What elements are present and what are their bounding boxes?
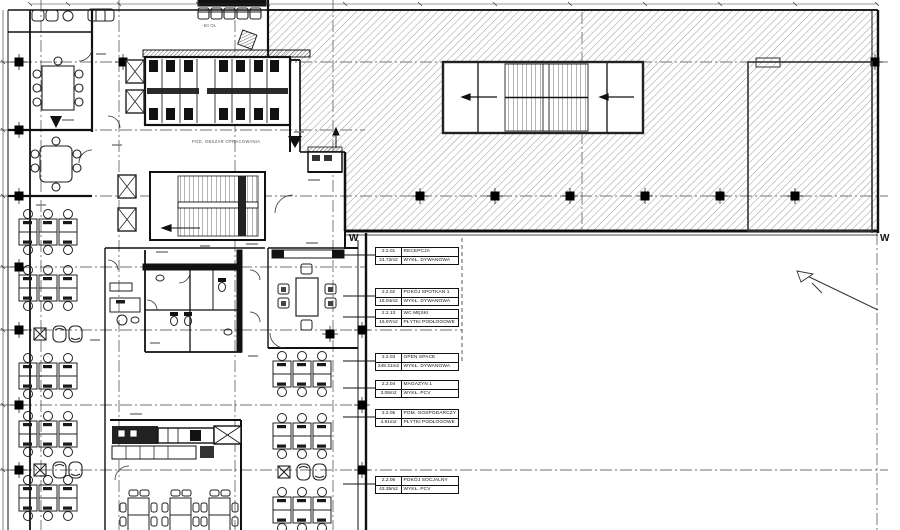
room-number: 2.2.04 — [376, 381, 402, 389]
wc-block — [145, 57, 290, 125]
room-area: 16.07m2 — [376, 319, 402, 326]
section-marker-w-left: W — [349, 233, 358, 244]
room-name: OPEN SPACE — [402, 354, 458, 362]
schedule-entry: 2.2.03OPEN SPACE 249.31m2WYKŁ. DYWANOWA — [375, 353, 459, 371]
room-number: 2.2.05 — [376, 410, 402, 418]
leader-arrow — [797, 271, 878, 310]
room-number: 2.2.02 — [376, 289, 402, 297]
room-floor: WYKŁ. DYWANOWA — [402, 298, 458, 305]
room-floor: WYKŁ. PCV — [402, 486, 458, 493]
room-number: 2.2.13 — [376, 310, 402, 318]
meeting-room-a — [33, 57, 83, 128]
room-area: 249.31m2 — [376, 363, 402, 370]
schedule-entry: 2.2.06POKÓJ SOCJALNY 43.35m2WYKŁ. PCV — [375, 476, 459, 494]
waiting-chair-row — [198, 8, 261, 49]
room-floor: WYKŁ. DYWANOWA — [402, 363, 458, 370]
section-marker-w-right: W — [880, 233, 889, 244]
room-floor: WYKŁ. DYWANOWA — [402, 257, 458, 264]
room-name: MAGAZYN 1 — [402, 381, 458, 389]
room-name: RECEPCJA — [402, 248, 458, 256]
room-floor: WYKŁ. PCV — [402, 390, 458, 397]
dining-tables — [120, 490, 238, 530]
room-number: 2.2.01 — [376, 248, 402, 256]
room-area: 43.35m2 — [376, 486, 402, 493]
kitchen-counters — [112, 426, 241, 459]
floorplan-canvas: W W POD. OBSZAR OPRACOWANIA -50 OL 2.2.0… — [0, 0, 900, 530]
room-area: 24.72m2 — [376, 257, 402, 264]
lounge-top-left — [32, 9, 114, 21]
room-floor: PŁYTKI PODŁOGOWE — [402, 319, 458, 326]
room-area: 3.08m2 — [376, 390, 402, 397]
schedule-leaders — [343, 255, 375, 484]
schedule-entry: 2.2.05POM. GOSPODARCZY 4.91m2PŁYTKI PODŁ… — [375, 409, 459, 427]
room-name: POKÓJ SPOTKAŃ 1 — [402, 289, 458, 297]
room-area: 16.04m2 — [376, 298, 402, 305]
level-note: -50 OL — [202, 23, 217, 28]
stair-core-top — [443, 62, 643, 133]
wc-fixtures — [110, 275, 232, 335]
room-floor: PŁYTKI PODŁOGOWE — [402, 419, 458, 426]
scope-note: POD. OBSZAR OPRACOWANIA — [192, 139, 260, 144]
stair-core-left — [150, 172, 265, 240]
schedule-entry: 2.2.02POKÓJ SPOTKAŃ 1 16.04m2WYKŁ. DYWAN… — [375, 288, 459, 306]
floor-plan-drawing — [0, 0, 900, 530]
schedule-entry: 2.2.04MAGAZYN 1 3.08m2WYKŁ. PCV — [375, 380, 459, 398]
room-name: POM. GOSPODARCZY — [402, 410, 458, 418]
room-number: 2.2.03 — [376, 354, 402, 362]
schedule-entry: 2.2.01RECEPCJA 24.72m2WYKŁ. DYWANOWA — [375, 247, 459, 265]
room-name: POKÓJ SOCJALNY — [402, 477, 458, 485]
room-area: 4.91m2 — [376, 419, 402, 426]
room-name: WC MĘSKI — [402, 310, 458, 318]
meeting-room-b — [31, 137, 81, 191]
room-number: 2.2.06 — [376, 477, 402, 485]
schedule-entry: 2.2.13WC MĘSKI 16.07m2PŁYTKI PODŁOGOWE — [375, 309, 459, 327]
